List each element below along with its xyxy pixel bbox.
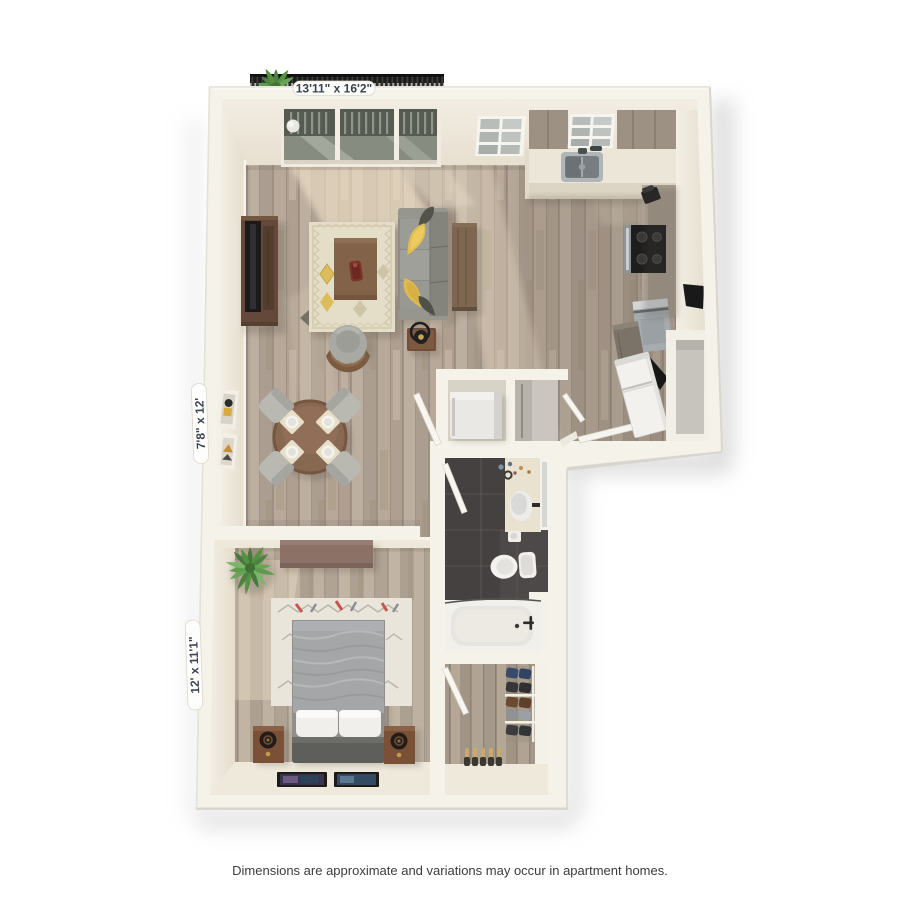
- svg-text:12' x 11'1": 12' x 11'1": [186, 636, 202, 694]
- svg-text:13'11" x 16'2": 13'11" x 16'2": [296, 82, 372, 96]
- svg-text:7'8" x 12': 7'8" x 12': [192, 397, 208, 449]
- svg-text:Dimensions are approximate and: Dimensions are approximate and variation…: [232, 863, 668, 878]
